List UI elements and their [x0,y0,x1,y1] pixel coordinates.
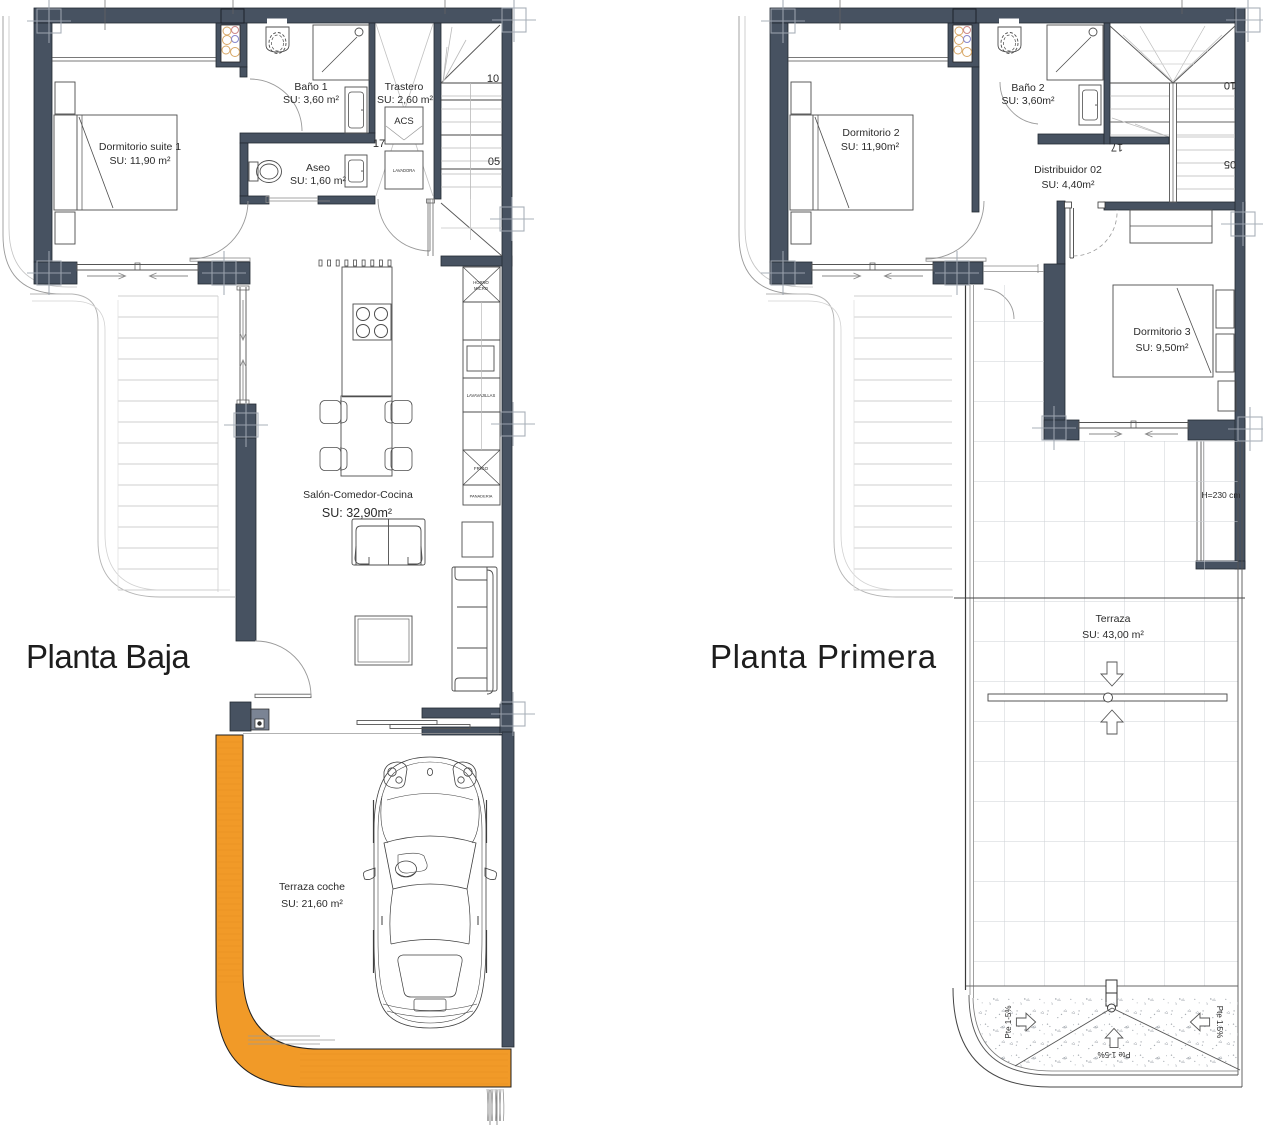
svg-text:SU: 4,40m²: SU: 4,40m² [1041,179,1095,191]
svg-text:LAVAVAJILLAS: LAVAVAJILLAS [467,393,496,398]
svg-text:SU: 2,60 m²: SU: 2,60 m² [377,94,434,106]
svg-text:Pte 1-5%: Pte 1-5% [1098,1050,1131,1059]
svg-text:SU: 21,60 m²: SU: 21,60 m² [281,898,343,910]
svg-text:Dormitorio 3: Dormitorio 3 [1133,326,1190,338]
svg-text:Pte 1.5%: Pte 1.5% [1215,1006,1224,1038]
svg-text:Trastero: Trastero [385,81,424,93]
svg-text:10: 10 [1224,79,1236,91]
svg-text:PANADERIA: PANADERIA [470,494,493,499]
svg-text:Baño 2: Baño 2 [1011,82,1044,94]
svg-text:Distribuidor 02: Distribuidor 02 [1034,164,1102,176]
svg-text:SU: 11,90m²: SU: 11,90m² [841,141,900,153]
svg-text:17: 17 [1111,141,1123,153]
svg-text:Baño 1: Baño 1 [294,81,327,93]
svg-text:SU: 3,60m²: SU: 3,60m² [1001,95,1055,107]
svg-text:Planta Primera: Planta Primera [710,638,937,675]
svg-text:Dormitorio 2: Dormitorio 2 [842,127,899,139]
svg-text:Aseo: Aseo [306,162,330,174]
svg-text:FRIGO: FRIGO [474,466,489,471]
svg-text:HORNO: HORNO [473,280,489,285]
svg-text:Terraza: Terraza [1095,613,1130,625]
svg-text:ACS: ACS [394,116,414,127]
svg-text:Salón-Comedor-Cocina: Salón-Comedor-Cocina [303,489,413,501]
svg-text:SU: 9,50m²: SU: 9,50m² [1135,342,1189,354]
svg-text:MICRO: MICRO [474,286,489,291]
svg-text:Terraza coche: Terraza coche [279,881,345,893]
svg-text:10: 10 [487,73,499,85]
svg-text:SU: 43,00 m²: SU: 43,00 m² [1082,629,1144,641]
svg-text:SU: 32,90m²: SU: 32,90m² [322,506,392,520]
svg-text:Pte 1-5%: Pte 1-5% [1004,1006,1013,1039]
svg-text:Dormitorio suite 1: Dormitorio suite 1 [99,141,181,153]
svg-text:SU: 11,90 m²: SU: 11,90 m² [109,155,171,167]
svg-text:LAVADORA: LAVADORA [393,168,415,173]
svg-text:05: 05 [1224,158,1236,170]
svg-text:Planta Baja: Planta Baja [26,638,190,675]
svg-text:SU: 3,60 m²: SU: 3,60 m² [283,94,340,106]
svg-text:SU: 1,60 m²: SU: 1,60 m² [290,175,347,187]
svg-text:05: 05 [488,156,500,168]
svg-text:17: 17 [373,138,385,150]
